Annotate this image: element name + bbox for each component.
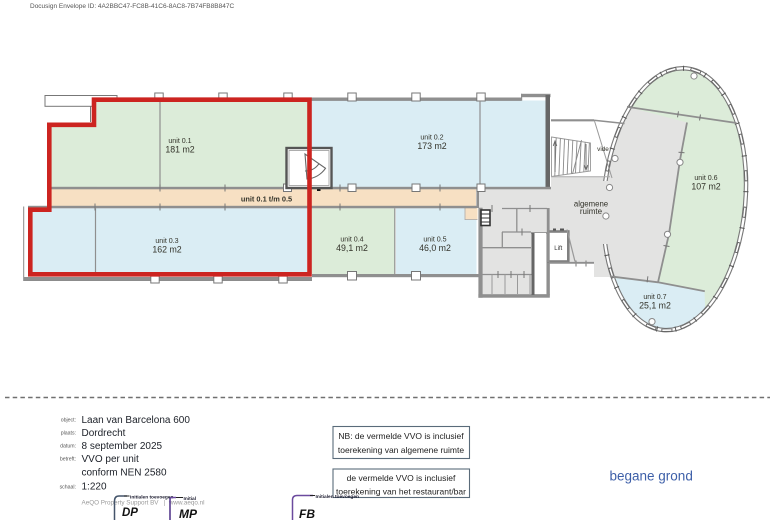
svg-text:162 m2: 162 m2: [152, 245, 181, 255]
svg-text:Initial: Initial: [184, 496, 197, 502]
svg-text:173 m2: 173 m2: [417, 141, 446, 151]
svg-text:ruimte: ruimte: [580, 207, 603, 216]
svg-text:NB: de vermelde VVO is inclusi: NB: de vermelde VVO is inclusief: [338, 431, 464, 441]
svg-text:schaal:: schaal:: [60, 485, 76, 491]
svg-text:DP: DP: [122, 507, 138, 519]
svg-text:MP: MP: [179, 507, 198, 520]
svg-text:de vermelde VVO is inclusief: de vermelde VVO is inclusief: [347, 473, 456, 483]
svg-text:toerekening van algemene ruimt: toerekening van algemene ruimte: [338, 445, 464, 455]
svg-text:Initialen toevoegen: Initialen toevoegen: [316, 494, 360, 500]
svg-text:FB: FB: [299, 507, 315, 520]
svg-text:49,1 m2: 49,1 m2: [336, 243, 368, 253]
svg-text:Laan van Barcelona 600: Laan van Barcelona 600: [82, 415, 191, 426]
svg-text:8 september 2025: 8 september 2025: [82, 441, 163, 452]
svg-text:VVO per unit: VVO per unit: [82, 454, 139, 465]
svg-text:vide: vide: [597, 146, 609, 153]
svg-text:unit 0.1 t/m 0.5: unit 0.1 t/m 0.5: [241, 195, 292, 204]
svg-text:46,0 m2: 46,0 m2: [419, 243, 451, 253]
svg-text:plaats:: plaats:: [61, 431, 76, 437]
svg-text:Lift: Lift: [554, 246, 562, 252]
svg-text:107 m2: 107 m2: [691, 182, 720, 192]
svg-text:1:220: 1:220: [82, 482, 107, 493]
svg-text:object:: object:: [61, 418, 76, 424]
svg-text:betreft:: betreft:: [60, 457, 76, 463]
svg-text:25,1 m2: 25,1 m2: [639, 301, 671, 311]
svg-text:conform NEN 2580: conform NEN 2580: [82, 468, 167, 479]
svg-text:Initialen toevoegen: Initialen toevoegen: [130, 494, 174, 500]
svg-text:Docusign Envelope ID: 4A2BBC47: Docusign Envelope ID: 4A2BBC47-FC8B-41C6…: [30, 3, 234, 10]
svg-text:Dordrecht: Dordrecht: [82, 428, 126, 439]
svg-text:datum:: datum:: [60, 444, 76, 450]
svg-text:begane grond: begane grond: [610, 469, 693, 484]
svg-text:181 m2: 181 m2: [165, 145, 194, 155]
